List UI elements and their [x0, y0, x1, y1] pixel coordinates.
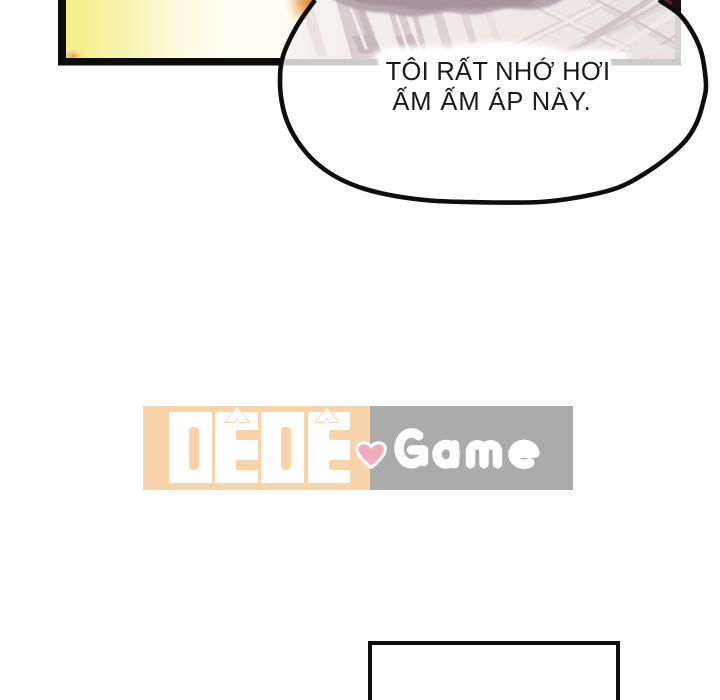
svg-text:TÔI RẤT NHỚ HƠI: TÔI RẤT NHỚ HƠI [386, 57, 611, 86]
svg-text:ẤM ẤM ÁP NÀY.: ẤM ẤM ÁP NÀY. [392, 87, 591, 116]
